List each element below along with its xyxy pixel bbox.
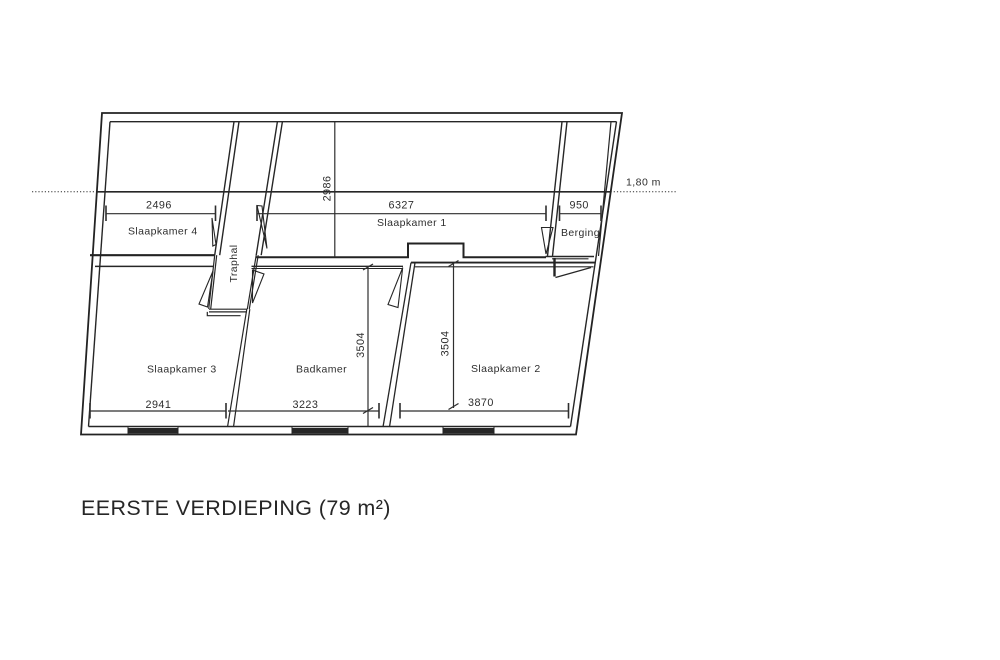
svg-text:2941: 2941 xyxy=(146,399,172,411)
svg-text:3504: 3504 xyxy=(440,331,452,357)
svg-text:6327: 6327 xyxy=(389,200,415,212)
svg-text:3223: 3223 xyxy=(293,399,319,411)
svg-text:Slaapkamer 2: Slaapkamer 2 xyxy=(471,363,541,375)
svg-text:Slaapkamer 4: Slaapkamer 4 xyxy=(128,226,198,238)
svg-text:3870: 3870 xyxy=(468,397,494,409)
svg-text:Berging: Berging xyxy=(561,227,600,239)
svg-text:3504: 3504 xyxy=(355,332,367,358)
svg-text:950: 950 xyxy=(570,200,589,212)
svg-text:2986: 2986 xyxy=(322,176,334,202)
svg-text:EERSTE VERDIEPING (79 m²): EERSTE VERDIEPING (79 m²) xyxy=(81,496,391,520)
svg-text:Traphal: Traphal xyxy=(228,244,240,282)
svg-text:Slaapkamer 1: Slaapkamer 1 xyxy=(377,217,447,229)
svg-text:Slaapkamer 3: Slaapkamer 3 xyxy=(147,364,217,376)
svg-text:1,80 m: 1,80 m xyxy=(626,177,661,189)
svg-text:2496: 2496 xyxy=(146,200,172,212)
svg-text:Badkamer: Badkamer xyxy=(296,364,347,376)
